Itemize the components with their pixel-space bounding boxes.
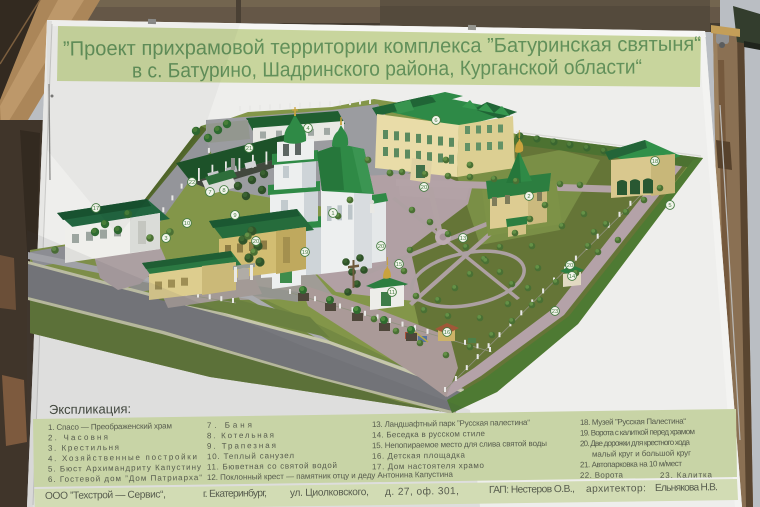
svg-text:18: 18 <box>652 159 658 165</box>
svg-text:8. Котельная: 8. Котельная <box>207 431 274 441</box>
svg-text:ул. Циолковского,: ул. Циолковского, <box>290 487 369 499</box>
svg-text:3: 3 <box>164 236 167 242</box>
svg-text:20: 20 <box>253 239 259 245</box>
svg-text:7: 7 <box>208 190 211 196</box>
svg-text:21: 21 <box>246 146 252 152</box>
svg-text:11: 11 <box>389 290 395 296</box>
svg-text:10: 10 <box>184 221 190 227</box>
svg-text:20: 20 <box>378 244 384 250</box>
svg-text:г. Екатеринбург,: г. Екатеринбург, <box>203 487 267 500</box>
svg-text:14: 14 <box>569 274 576 280</box>
svg-text:3. Крестильня: 3. Крестильня <box>48 443 119 453</box>
svg-text:8: 8 <box>222 188 225 194</box>
svg-text:Ельнякова Н.В.: Ельнякова Н.В. <box>655 482 718 494</box>
svg-text:9. Трапезная: 9. Трапезная <box>207 441 276 451</box>
svg-text:1: 1 <box>331 211 334 217</box>
svg-text:14. Беседка в русском стиле: 14. Беседка в русском стиле <box>372 429 486 439</box>
svg-text:2: 2 <box>527 194 530 200</box>
svg-text:ООО ”Техстрой — Сервис“,: ООО ”Техстрой — Сервис“, <box>45 489 166 502</box>
svg-text:ГАП: Нестеров О.В.,: ГАП: Нестеров О.В., <box>489 484 575 496</box>
svg-text:19: 19 <box>302 250 308 256</box>
svg-text:10. Теплый санузел: 10. Теплый санузел <box>207 451 294 461</box>
svg-text:9: 9 <box>233 213 236 219</box>
svg-text:д. 27, оф. 301,: д. 27, оф. 301, <box>385 485 459 498</box>
svg-text:20. Две дорожки для крестного: 20. Две дорожки для крестного хода <box>580 438 691 448</box>
svg-text:21. Автопарковка на 10 м/мест: 21. Автопарковка на 10 м/мест <box>580 459 682 469</box>
svg-text:16: 16 <box>444 330 450 336</box>
svg-text:архитектор:: архитектор: <box>586 483 646 495</box>
svg-text:11. Бюветная со святой водой: 11. Бюветная со святой водой <box>207 461 337 472</box>
svg-text:1. Спасо — Преображенский храм: 1. Спасо — Преображенский храм <box>48 421 172 432</box>
svg-text:13: 13 <box>460 236 466 242</box>
svg-text:19. Ворота с калиткой перед хр: 19. Ворота с калиткой перед храмом <box>580 427 695 438</box>
svg-text:16. Детская площадка: 16. Детская площадка <box>372 451 466 461</box>
svg-text:20: 20 <box>567 263 573 269</box>
svg-text:22: 22 <box>189 180 195 186</box>
svg-text:17. Дом настоятеля храмо: 17. Дом настоятеля храмо <box>372 461 485 471</box>
svg-text:18. Музей ”Русская Палестина“: 18. Музей ”Русская Палестина“ <box>580 417 686 427</box>
svg-text:15: 15 <box>396 262 402 268</box>
svg-text:23. Калитка: 23. Калитка <box>660 470 713 480</box>
svg-text:20: 20 <box>421 185 427 191</box>
svg-text:малый круг и большой круг: малый круг и большой круг <box>592 449 691 459</box>
svg-text:Экспликация:: Экспликация: <box>49 401 131 417</box>
svg-text:5: 5 <box>668 203 671 209</box>
svg-text:23: 23 <box>552 309 558 315</box>
svg-text:6: 6 <box>434 118 437 124</box>
svg-text:22. Ворота: 22. Ворота <box>580 470 624 480</box>
